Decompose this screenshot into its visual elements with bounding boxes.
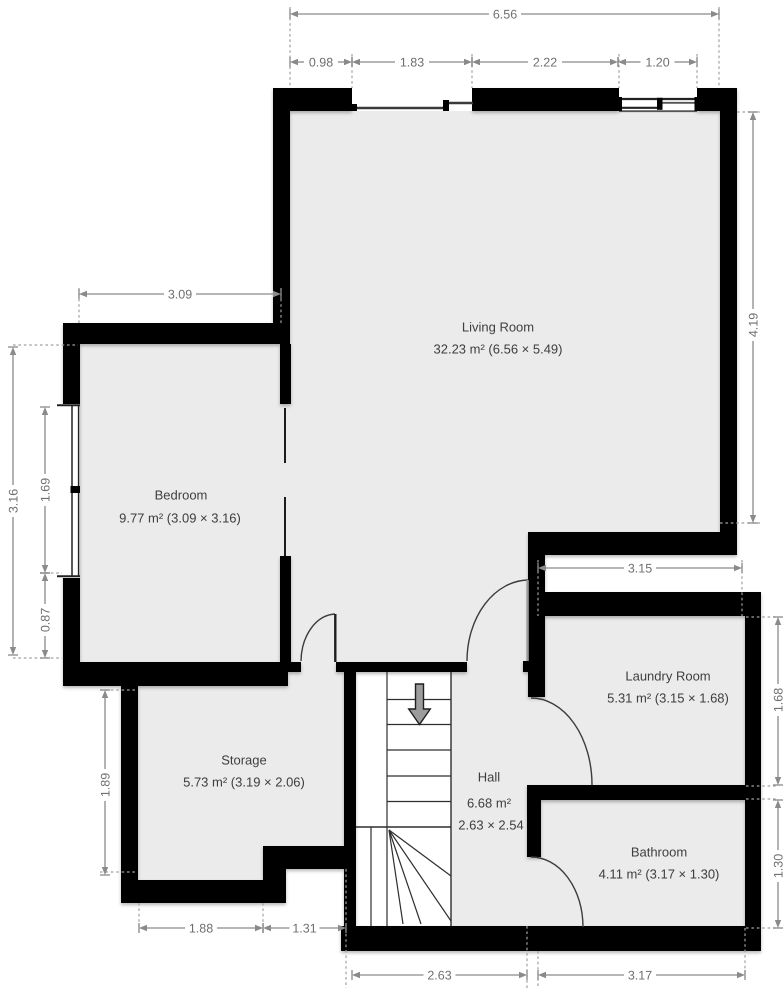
svg-text:1.31: 1.31 bbox=[292, 921, 316, 935]
svg-text:3.17: 3.17 bbox=[628, 968, 652, 982]
svg-text:1.30: 1.30 bbox=[771, 854, 784, 878]
svg-text:5.31 m² (3.15 × 1.68): 5.31 m² (3.15 × 1.68) bbox=[607, 691, 729, 706]
svg-text:1.88: 1.88 bbox=[189, 921, 213, 935]
svg-text:Bathroom: Bathroom bbox=[631, 845, 687, 860]
svg-text:1.69: 1.69 bbox=[38, 478, 52, 502]
svg-text:1.68: 1.68 bbox=[771, 688, 784, 712]
svg-text:Living Room: Living Room bbox=[462, 320, 534, 335]
svg-text:5.73 m² (3.19 × 2.06): 5.73 m² (3.19 × 2.06) bbox=[183, 775, 305, 790]
svg-text:2.63 × 2.54: 2.63 × 2.54 bbox=[458, 818, 523, 833]
svg-text:Storage: Storage bbox=[221, 753, 267, 768]
svg-text:3.15: 3.15 bbox=[628, 561, 652, 575]
svg-text:2.22: 2.22 bbox=[533, 55, 557, 69]
svg-text:1.83: 1.83 bbox=[400, 55, 424, 69]
svg-text:1.89: 1.89 bbox=[98, 773, 112, 797]
svg-text:Hall: Hall bbox=[478, 770, 501, 785]
svg-text:6.68 m²: 6.68 m² bbox=[467, 796, 512, 811]
svg-text:2.63: 2.63 bbox=[427, 968, 451, 982]
svg-text:0.98: 0.98 bbox=[309, 55, 333, 69]
svg-text:9.77 m² (3.09 × 3.16): 9.77 m² (3.09 × 3.16) bbox=[119, 511, 241, 526]
svg-text:3.09: 3.09 bbox=[168, 287, 192, 301]
svg-text:4.19: 4.19 bbox=[746, 313, 760, 337]
svg-text:32.23 m² (6.56 × 5.49): 32.23 m² (6.56 × 5.49) bbox=[434, 342, 563, 357]
svg-text:Bedroom: Bedroom bbox=[155, 488, 208, 503]
svg-text:6.56: 6.56 bbox=[493, 7, 517, 21]
svg-text:Laundry Room: Laundry Room bbox=[625, 669, 710, 684]
svg-text:3.16: 3.16 bbox=[6, 489, 20, 513]
svg-text:1.20: 1.20 bbox=[645, 55, 669, 69]
svg-text:4.11 m² (3.17 × 1.30): 4.11 m² (3.17 × 1.30) bbox=[599, 867, 720, 882]
svg-text:0.87: 0.87 bbox=[38, 608, 52, 632]
